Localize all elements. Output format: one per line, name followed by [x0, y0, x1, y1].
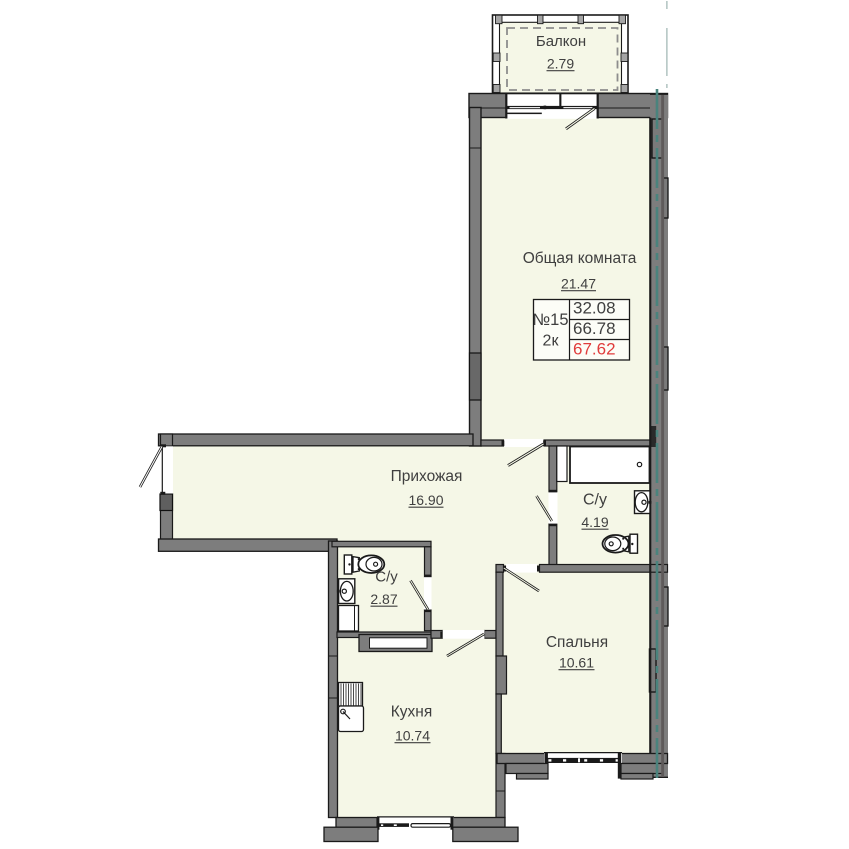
- svg-text:21.47: 21.47: [561, 276, 596, 292]
- svg-text:Общая комната: Общая комната: [523, 250, 637, 267]
- svg-text:2к: 2к: [543, 333, 560, 350]
- svg-text:Прихожая: Прихожая: [391, 468, 463, 485]
- svg-text:16.90: 16.90: [408, 492, 443, 508]
- svg-text:2.87: 2.87: [370, 591, 397, 607]
- svg-text:66.78: 66.78: [573, 319, 616, 338]
- svg-text:С/у: С/у: [583, 492, 607, 509]
- svg-text:Спальня: Спальня: [546, 634, 608, 651]
- svg-text:Балкон: Балкон: [536, 33, 586, 50]
- svg-text:С/у: С/у: [375, 569, 398, 586]
- svg-text:10.61: 10.61: [559, 655, 594, 671]
- svg-text:10.74: 10.74: [395, 728, 430, 744]
- svg-text:Кухня: Кухня: [391, 704, 432, 721]
- svg-text:67.62: 67.62: [573, 340, 616, 359]
- svg-text:4.19: 4.19: [581, 514, 608, 530]
- svg-text:32.08: 32.08: [573, 299, 616, 318]
- svg-text:№15: №15: [532, 311, 568, 329]
- svg-text:2.79: 2.79: [547, 56, 574, 72]
